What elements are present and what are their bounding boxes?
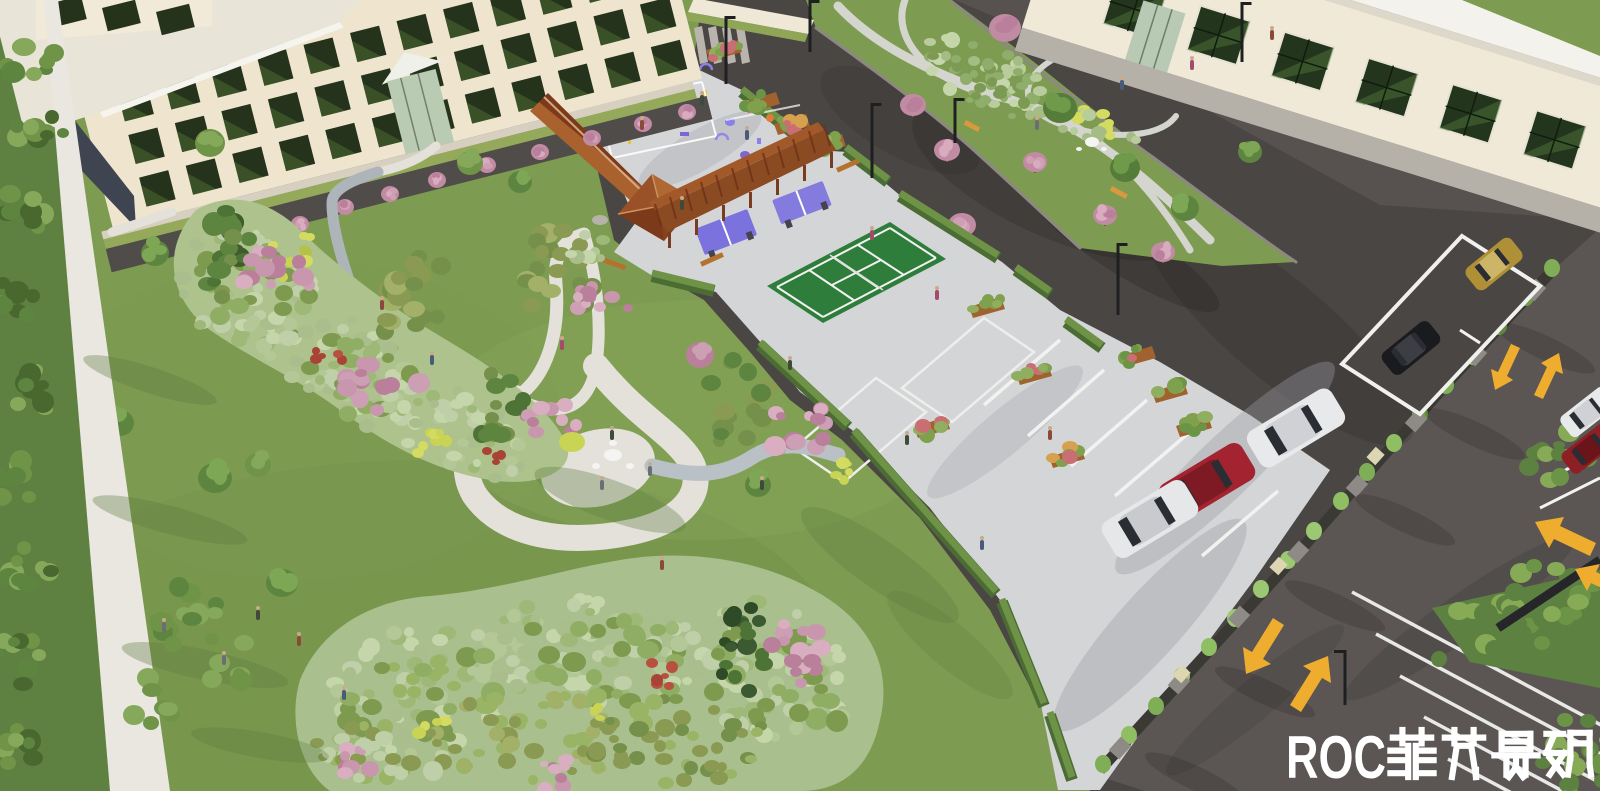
svg-text:ROC: ROC [1286, 724, 1386, 791]
